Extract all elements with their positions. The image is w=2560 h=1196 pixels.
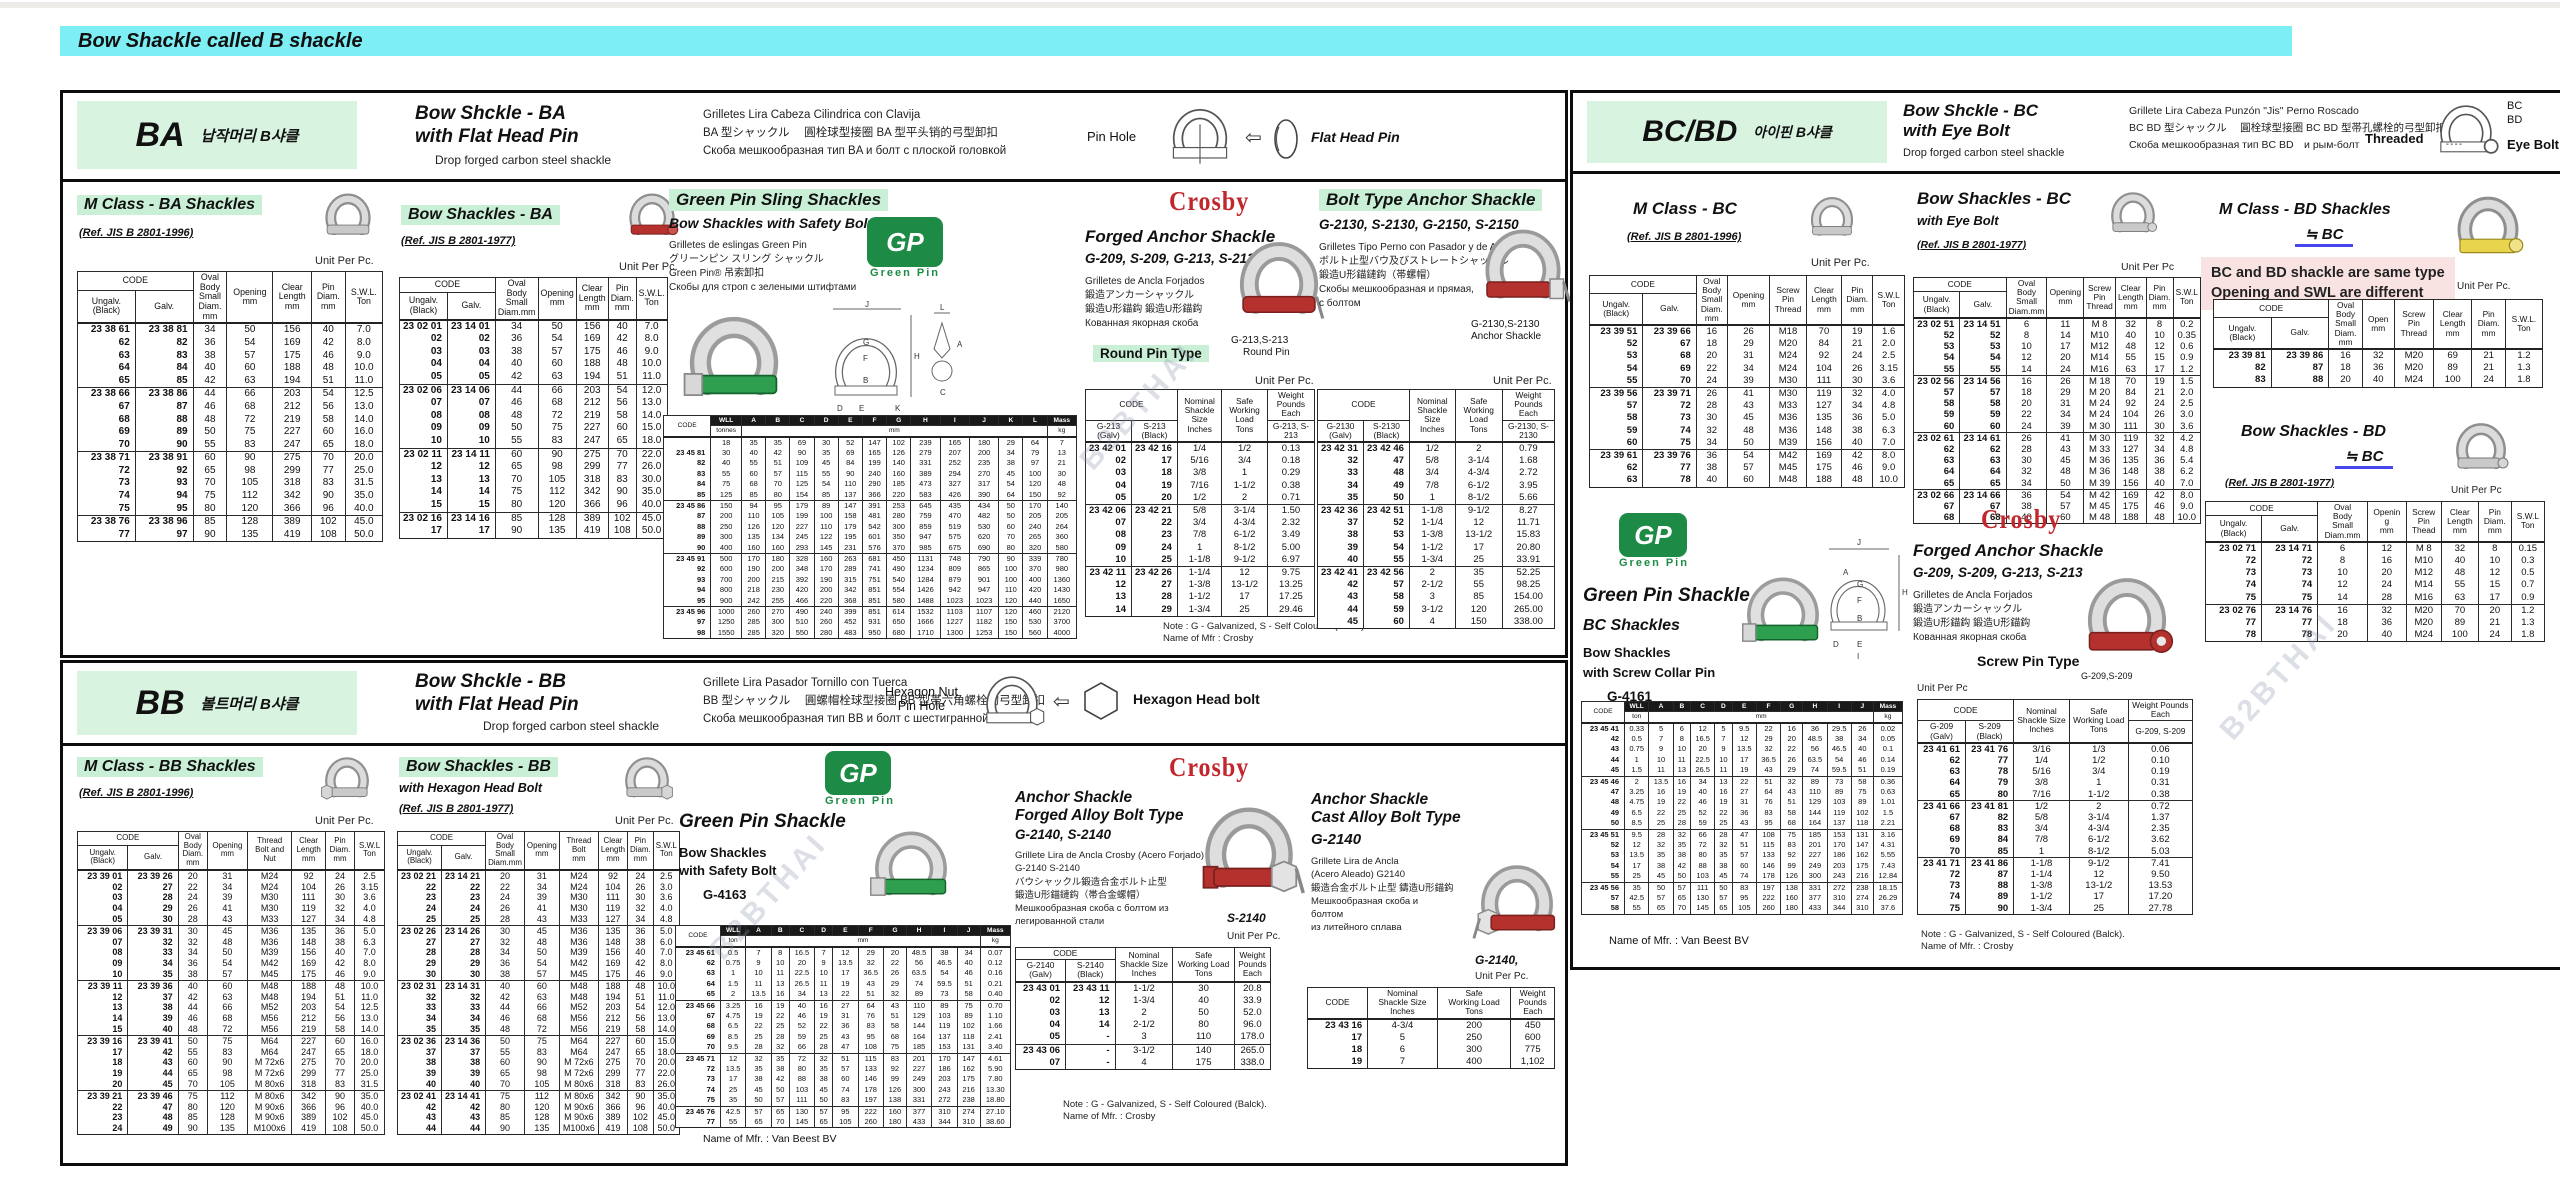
table-row: 23 43 0123 43 111-1/23020.8 xyxy=(1016,982,1271,995)
table-cell: 103 xyxy=(1690,871,1714,882)
s2140-unit: Unit Per Pc. xyxy=(1227,931,1280,942)
table-cell: 34 xyxy=(442,1013,486,1024)
gp-bc-dimension-diagram: J H A G F B D E I xyxy=(1813,531,1908,681)
svg-text:J: J xyxy=(1857,538,1861,547)
table-cell: 24 xyxy=(2478,629,2511,642)
table-cell: 15 xyxy=(2146,352,2173,363)
table-cell: M 8 xyxy=(2406,542,2441,555)
table-row: 59592234M 24104263.0 xyxy=(1914,409,2201,420)
table-cell: 645 xyxy=(911,500,940,511)
table-row: 08333450M39156407.0 xyxy=(78,947,385,958)
table-cell: 29 xyxy=(2047,387,2084,398)
table-header-cell: I xyxy=(1827,702,1851,712)
table-cell: 67 xyxy=(1914,501,1960,512)
table-cell: 65 xyxy=(193,465,227,478)
table-row: 77979013541910850.0 xyxy=(78,529,383,542)
table-cell: 89 xyxy=(2434,362,2472,374)
table-cell: 23 39 61 xyxy=(1590,449,1643,462)
table-cell: 45 xyxy=(746,1085,771,1095)
table-cell: 104 xyxy=(598,882,627,893)
table-cell: 299 xyxy=(598,1068,627,1079)
g209-unit: Unit Per Pc xyxy=(1917,683,1968,694)
table-cell: 19 xyxy=(1842,325,1873,338)
table-cell: 83 xyxy=(311,477,345,490)
table-cell: 199 xyxy=(862,458,886,468)
table-cell: 38 xyxy=(1827,734,1851,744)
table-cell: 5.4 xyxy=(2173,455,2200,466)
gp-bb-sub1: Bow Shackles xyxy=(679,845,766,860)
shackle-photo-icon xyxy=(2105,185,2161,243)
table-cell: - xyxy=(1066,1044,1115,1057)
table-cell: 40 xyxy=(1173,995,1234,1007)
table-cell: 78 xyxy=(1966,766,2014,777)
table-cell: 13-1/2 xyxy=(1455,529,1502,541)
fs-desc-4: Кованная якорная скоба xyxy=(1913,631,2033,645)
table-cell: 12 xyxy=(1455,517,1502,529)
table-row: 23 02 0623 14 0644662035412.0 xyxy=(400,384,668,397)
table-cell: 88 xyxy=(135,414,193,427)
svg-text:K: K xyxy=(895,404,901,413)
table-cell: 37 xyxy=(128,992,178,1003)
g2140-forged-table: CODENominal Shackle Size InchesSafe Work… xyxy=(1015,947,1271,1070)
table-cell: 54 xyxy=(814,479,838,489)
table-header-cell: Ungalv. (Black) xyxy=(1590,293,1643,325)
table-cell: 89 xyxy=(1851,797,1873,807)
bb-subtitle: Drop forged carbon steel shackle xyxy=(483,719,659,733)
table-cell: 45 xyxy=(524,925,559,936)
table-cell: M20 xyxy=(2406,617,2441,629)
ba-title-line1: Bow Shckle - BA xyxy=(415,103,579,126)
table-cell: 260 xyxy=(858,1117,883,1128)
table-cell: 34 xyxy=(398,1013,442,1024)
table-cell: 100 xyxy=(999,575,1023,585)
table-cell: 65 xyxy=(771,1106,789,1117)
table-cell: 23 45 81 xyxy=(664,448,711,458)
table-cell: 29 xyxy=(883,979,906,989)
table-cell: 55 xyxy=(1914,364,1960,376)
table-cell: 83 xyxy=(608,474,636,487)
table-cell: 542 xyxy=(862,522,886,532)
table-cell: 39 xyxy=(442,1068,486,1079)
table-cell: 34 xyxy=(1696,437,1727,450)
table-cell: 128 xyxy=(538,512,576,525)
table-cell: 28 xyxy=(486,914,525,925)
table-cell: 1-3/8 xyxy=(1177,579,1221,591)
table-cell: 55 xyxy=(711,469,742,479)
table-cell: 5 xyxy=(1368,1032,1438,1044)
bow-bb-table: CODEOval Body Small Diam.mmOpening mmThr… xyxy=(397,831,661,1135)
table-cell: 54 xyxy=(538,333,576,346)
table-cell: 1-1/8 xyxy=(1177,554,1221,567)
table-cell: 57 xyxy=(1732,850,1756,860)
bow-bd-title: Bow Shackles - BD xyxy=(2241,423,2386,441)
table-cell: 3 xyxy=(1409,591,1455,603)
table-cell: 58 xyxy=(1960,398,2006,409)
table-cell: 18.15 xyxy=(1873,882,1902,893)
table-cell: 36 xyxy=(2006,489,2047,501)
table-cell: 31.5 xyxy=(345,477,382,490)
table-row: 23 42 4123 42 5623552.25 xyxy=(1318,566,1555,579)
table-cell: 1-3/8 xyxy=(1409,529,1455,541)
table-cell: 118 xyxy=(957,1032,980,1042)
svg-text:B: B xyxy=(863,376,868,385)
table-cell: 23 14 11 xyxy=(447,448,495,461)
table-cell: 105 xyxy=(227,477,273,490)
table-cell: 203 xyxy=(292,1002,325,1013)
table-cell: 4.61 xyxy=(980,1053,1010,1064)
table-cell: 13-1/2 xyxy=(2069,880,2128,891)
table-cell: 23 14 51 xyxy=(1960,318,2006,330)
svg-text:B: B xyxy=(1857,614,1862,623)
table-cell: 127 xyxy=(598,914,627,925)
table-cell: 25 xyxy=(442,914,486,925)
table-cell: 16.0 xyxy=(345,426,382,439)
table-cell: 179 xyxy=(838,522,862,532)
table-cell: 175 xyxy=(292,969,325,980)
table-cell: 36 xyxy=(178,958,207,969)
hex-nut-line2: Pin Hole xyxy=(885,699,958,713)
bow-bc-ref: (Ref. JIS B 2801-1977) xyxy=(1917,239,2026,251)
table-cell: 45 xyxy=(1318,616,1364,629)
table-cell: M 30 xyxy=(2084,432,2116,444)
table-row: 62773857M45175469.0 xyxy=(1590,462,1905,474)
table-cell: 23 39 76 xyxy=(1643,449,1696,462)
table-cell: 54 xyxy=(227,337,273,350)
table-cell: 35 xyxy=(742,437,766,448)
table-cell: 64 xyxy=(78,362,136,375)
table-cell: 120 xyxy=(999,607,1023,618)
table-row: 9480021823042020034285155414269429471104… xyxy=(664,585,1077,595)
table-cell: 53 xyxy=(1960,341,2006,352)
g209-table: CODENominal Shackle Size InchesSafe Work… xyxy=(1917,699,2193,915)
table-cell: 22 xyxy=(1673,797,1690,807)
table-cell: 1 xyxy=(2014,846,2070,858)
table-cell: 162 xyxy=(1851,850,1873,860)
table-cell: 7.0 xyxy=(345,323,382,337)
table-cell: 0.06 xyxy=(2128,743,2192,755)
table-row: 52123235723251115832011701474.31 xyxy=(1582,840,1903,850)
table-row: 441101122.5101736.52663.554460.14 xyxy=(1582,755,1903,765)
table-cell: 0.2 xyxy=(2173,318,2200,330)
table-cell: 16.5 xyxy=(789,947,814,958)
table-cell: 120 xyxy=(766,522,790,532)
table-cell: 614 xyxy=(887,607,911,618)
table-cell: 23 45 56 xyxy=(1582,882,1625,893)
table-cell: 23 39 66 xyxy=(1643,325,1696,338)
data-table: CODEWLLABCDEFGHIJMasstonmmkg23 45 410.33… xyxy=(1581,701,1903,915)
table-cell: 23 45 71 xyxy=(676,1053,721,1064)
table-cell: 60 xyxy=(1590,437,1643,450)
table-row: 8720011010519910015848128075947048250205… xyxy=(664,511,1077,521)
table-cell: 55 xyxy=(1455,579,1502,591)
gp-sling-desc: Grilletes de eslingas Green Pin グリーンピン ス… xyxy=(669,239,856,295)
table-cell: 293 xyxy=(790,543,814,554)
table-cell: 331 xyxy=(1803,882,1827,893)
table-cell: 27.10 xyxy=(980,1106,1010,1117)
table-header-cell: Galv. xyxy=(135,290,193,323)
table-cell: 55 xyxy=(2441,579,2478,591)
table-header-cell: Ungalv. (Black) xyxy=(2206,516,2262,542)
table-cell: 24 xyxy=(325,870,354,882)
table-cell: 20 xyxy=(883,947,906,958)
table-cell: 12 xyxy=(447,461,495,474)
table-row: 54173842883860146992492031757.43 xyxy=(1582,861,1903,871)
table-cell: 138 xyxy=(1781,882,1803,893)
table-cell: 12 xyxy=(2367,542,2406,555)
table-cell: 212 xyxy=(273,401,311,414)
table-cell: 90 xyxy=(311,490,345,503)
table-row: 23 41 6123 41 763/161/30.06 xyxy=(1918,743,2193,755)
bcbd-label: BC/BD xyxy=(1642,115,1737,149)
table-cell: 8.0 xyxy=(355,958,385,969)
table-row: 27273248M36148386.0 xyxy=(398,937,680,948)
table-cell: 119 xyxy=(1806,387,1841,400)
table-cell: 338.00 xyxy=(1502,616,1554,629)
table-cell: 227 xyxy=(906,1064,931,1074)
table-cell: 63.5 xyxy=(906,968,931,978)
table-cell: 73 xyxy=(1918,880,1966,891)
table-cell: 70 xyxy=(1806,325,1841,338)
table-header-cell: Mass xyxy=(1873,702,1902,712)
table-row: 090950752276015.0 xyxy=(400,422,668,435)
table-cell: 92 xyxy=(598,870,627,882)
table-row: 12271-3/813-1/213.25 xyxy=(1086,579,1315,591)
table-cell: 16 xyxy=(2318,604,2368,617)
table-cell: 03 xyxy=(78,892,128,903)
table-cell: 99 xyxy=(1781,861,1803,871)
table-cell: 67 xyxy=(676,1011,721,1021)
g213-table: CODENominal Shackle Size InchesSafe Work… xyxy=(1085,389,1315,617)
table-cell: 60 xyxy=(538,358,576,371)
table-header-cell: CODE xyxy=(2206,502,2318,516)
table-cell: 83 xyxy=(325,1079,354,1090)
table-cell: 62 xyxy=(78,337,136,350)
table-cell: 8-1/2 xyxy=(1455,492,1502,505)
table-cell: 530 xyxy=(1023,617,1047,627)
table-row: 63633045M 36135365.4 xyxy=(1914,455,2201,466)
table-cell: 299 xyxy=(292,1068,325,1079)
table-cell: 42 xyxy=(1318,579,1364,591)
table-header-cell: S.W.L Ton xyxy=(2511,502,2544,542)
table-cell: 146 xyxy=(858,1074,883,1084)
table-cell: 65 xyxy=(746,1117,771,1128)
table-cell: 8.0 xyxy=(345,337,382,350)
table-cell: 1 xyxy=(1177,542,1221,554)
table-cell: 75 xyxy=(1918,903,1966,915)
table-cell: 23 39 06 xyxy=(78,925,128,936)
table-cell: 23 14 56 xyxy=(1960,375,2006,387)
table-cell: 9.5 xyxy=(720,1042,745,1053)
table-cell: 23 39 21 xyxy=(78,1090,128,1101)
table-cell: 135 xyxy=(2115,455,2146,466)
table-cell: 227 xyxy=(598,1035,627,1046)
table-cell: 69 xyxy=(2434,349,2472,362)
table-cell: 47 xyxy=(128,1102,178,1113)
table-cell: 212 xyxy=(598,1013,627,1024)
table-cell: 70 xyxy=(628,1057,654,1068)
table-cell: 38 xyxy=(1649,861,1673,871)
table-row: 23 02 1123 14 1160902757022.0 xyxy=(400,448,668,461)
table-cell: 22.5 xyxy=(1690,755,1714,765)
table-cell: M30 xyxy=(247,903,292,914)
table-cell: 58 xyxy=(628,1024,654,1035)
table-cell: 540 xyxy=(887,575,911,585)
table-header-row: CODEOval Body Small Diam. mmOpening mmCl… xyxy=(78,272,383,291)
gp-desc-3: Green Pin® 吊索卸扣 xyxy=(669,267,856,281)
table-header-row: CODENominal Shackle Size InchesSafe Work… xyxy=(1016,948,1271,960)
table-cell: 41 xyxy=(2047,432,2084,444)
table-row: 75751428M1663170.9 xyxy=(2206,592,2545,605)
table-cell: 40 xyxy=(178,980,207,991)
table-cell: 26 xyxy=(2006,432,2047,444)
table-cell: 49 xyxy=(1582,808,1625,818)
table-row: 05-3110178.0 xyxy=(1016,1031,1271,1044)
table-header-cell: tonnes xyxy=(711,426,742,437)
table-cell: 39 xyxy=(1727,375,1769,388)
table-cell: 299 xyxy=(576,461,608,474)
table-cell: 17 xyxy=(1625,861,1649,871)
table-cell: 0.5 xyxy=(720,947,745,958)
table-cell: 1/4 xyxy=(2014,755,2070,766)
table-cell: 58 xyxy=(325,1024,354,1035)
table-cell: 2-1/2 xyxy=(1115,1019,1173,1031)
bcbd-header: BC/BD 아이핀 B샤클 Bow Shckle - BC with Eye B… xyxy=(1573,93,2560,174)
table-cell: 5/8 xyxy=(1177,504,1221,517)
table-cell: 74 xyxy=(1803,765,1827,776)
table-row: 9815502853205502804839506801710130012531… xyxy=(664,628,1077,639)
table-cell: 203 xyxy=(576,384,608,397)
ba-desc-3: Скоба мешкообразная тип BA и болт с плос… xyxy=(703,143,1006,161)
table-row: 851258580154851373662205834263906415092 xyxy=(664,490,1077,501)
table-cell: 38 xyxy=(442,1057,486,1068)
table-cell: 153 xyxy=(932,1042,957,1053)
green-pin-logo: GP Green Pin xyxy=(1619,513,1689,569)
table-cell: M24 xyxy=(2406,629,2441,642)
table-cell: 153 xyxy=(1827,829,1851,840)
bow-bb-unit: Unit Per Pc. xyxy=(615,815,674,827)
table-cell: 68 xyxy=(1781,818,1803,829)
table-cell: 43 xyxy=(207,914,247,925)
table-cell: M 8 xyxy=(2084,318,2116,330)
table-row: 02023654169428.0 xyxy=(400,333,668,346)
table-cell: 95 xyxy=(1756,818,1780,829)
table-row: 23 43 164-3/4200450 xyxy=(1308,1019,1555,1032)
table-row: 58733045M36135365.0 xyxy=(1590,412,1905,424)
bow-bd-unit: Unit Per Pc xyxy=(2451,485,2502,496)
fs-desc-2: 鍛造アンカーシャックル xyxy=(1913,603,2033,617)
table-cell: 12.5 xyxy=(345,388,382,401)
table-cell: 0.79 xyxy=(1502,442,1554,455)
table-header-cell: Ungalv. (Black) xyxy=(78,845,128,870)
table-cell: 57 xyxy=(1960,387,2006,398)
table-cell: 160 xyxy=(887,469,911,479)
table-cell: 156 xyxy=(2115,478,2146,490)
table-cell: 50 xyxy=(815,1095,833,1106)
table-cell: 0.19 xyxy=(1873,765,1902,776)
table-cell: 54 xyxy=(999,479,1023,489)
table-cell: 14 xyxy=(2006,364,2047,376)
table-cell: 50 xyxy=(495,422,538,435)
table-row: 23 39 5123 39 661626M1870191.6 xyxy=(1590,325,1905,338)
table-cell: 96 xyxy=(311,503,345,516)
table-cell: - xyxy=(1066,1031,1115,1044)
table-cell: 175 xyxy=(273,350,311,363)
table-cell: 9 xyxy=(1649,744,1673,754)
table-cell: 4 xyxy=(1409,616,1455,629)
table-header-cell: B xyxy=(771,926,789,936)
table-cell: 60 xyxy=(227,362,273,375)
table-row: 23 02 1623 14 168512838910245.0 xyxy=(400,512,668,525)
table-cell: 5/8 xyxy=(1409,455,1455,467)
table-cell: 23 42 16 xyxy=(1131,442,1177,455)
table-cell: 1.5 xyxy=(1873,808,1902,818)
table-cell: 36 xyxy=(193,337,227,350)
table-header-cell: Safe Working Load Tons xyxy=(1437,988,1511,1019)
table-header-cell: D xyxy=(814,416,838,426)
table-row: 23 02 4123 14 4175112M 80x63429035.0 xyxy=(398,1090,680,1101)
table-cell: 7.80 xyxy=(980,1074,1010,1084)
table-row: 08237/86-1/23.49 xyxy=(1086,529,1315,541)
crosby-logo: Crosby xyxy=(1981,505,2061,536)
table-cell: 23 39 16 xyxy=(78,1035,128,1046)
g2130-unit: Unit Per Pc. xyxy=(1493,375,1552,387)
table-cell: 70 xyxy=(2441,604,2478,617)
table-cell: 40 xyxy=(1842,437,1873,450)
table-cell: 24 xyxy=(486,892,525,903)
table-cell: 48 xyxy=(193,414,227,427)
table-cell: 9.50 xyxy=(2128,869,2192,880)
table-cell: 36 xyxy=(1696,449,1727,462)
table-cell: 9.5 xyxy=(1732,723,1756,734)
table-cell: 128 xyxy=(524,1112,559,1123)
gp-bb-title: Green Pin Shackle xyxy=(679,811,846,833)
table-cell: 04 xyxy=(1086,480,1132,492)
table-cell: 84 xyxy=(664,479,711,489)
table-cell: 51 xyxy=(858,989,883,1000)
table-row: 9370020021539219031575154012848799011004… xyxy=(664,575,1077,585)
table-cell: 89 xyxy=(814,500,838,511)
table-cell: 434 xyxy=(969,500,998,511)
table-row: 23 02 2123 14 212031M2492242.5 xyxy=(398,870,680,882)
table-row: 23 39 1623 39 415075M642276016.0 xyxy=(78,1035,385,1046)
table-cell: 38 xyxy=(999,458,1023,468)
table-cell: 26 xyxy=(1727,325,1769,338)
table-header-cell: Weight Pounds Each xyxy=(1267,390,1314,421)
table-cell: 300 xyxy=(1437,1044,1511,1056)
table-cell: 40 xyxy=(486,980,525,991)
table-cell: M 30 xyxy=(2084,421,2116,433)
table-cell: 27 xyxy=(442,937,486,948)
table-cell: 28 xyxy=(815,1042,833,1053)
table-cell: 23 39 56 xyxy=(1590,387,1643,400)
table-cell: 29 xyxy=(442,958,486,969)
table-cell: 219 xyxy=(273,414,311,427)
table-header-cell: Safe Working Load Tons xyxy=(2069,700,2128,743)
table-cell: 31.5 xyxy=(355,1079,385,1090)
table-cell: 4-3/4 xyxy=(1455,467,1502,479)
table-cell: 65 xyxy=(1914,478,1960,490)
table-cell: 74 xyxy=(2262,579,2318,591)
table-row: 175250600 xyxy=(1308,1032,1555,1044)
table-header-cell: K xyxy=(999,416,1023,426)
table-cell: 12 xyxy=(2478,567,2511,579)
bb-header: BB 볼트머리 B샤클 Bow Shckle - BB with Flat He… xyxy=(63,663,1565,746)
table-cell: 72 xyxy=(1690,840,1714,850)
table-header-row: CODEOval Body Small Diam. mmOpen mmScrew… xyxy=(2214,300,2543,318)
table-cell: 175 xyxy=(2115,501,2146,512)
table-row: 45604150338.00 xyxy=(1318,616,1555,629)
table-cell: 985 xyxy=(911,543,940,554)
